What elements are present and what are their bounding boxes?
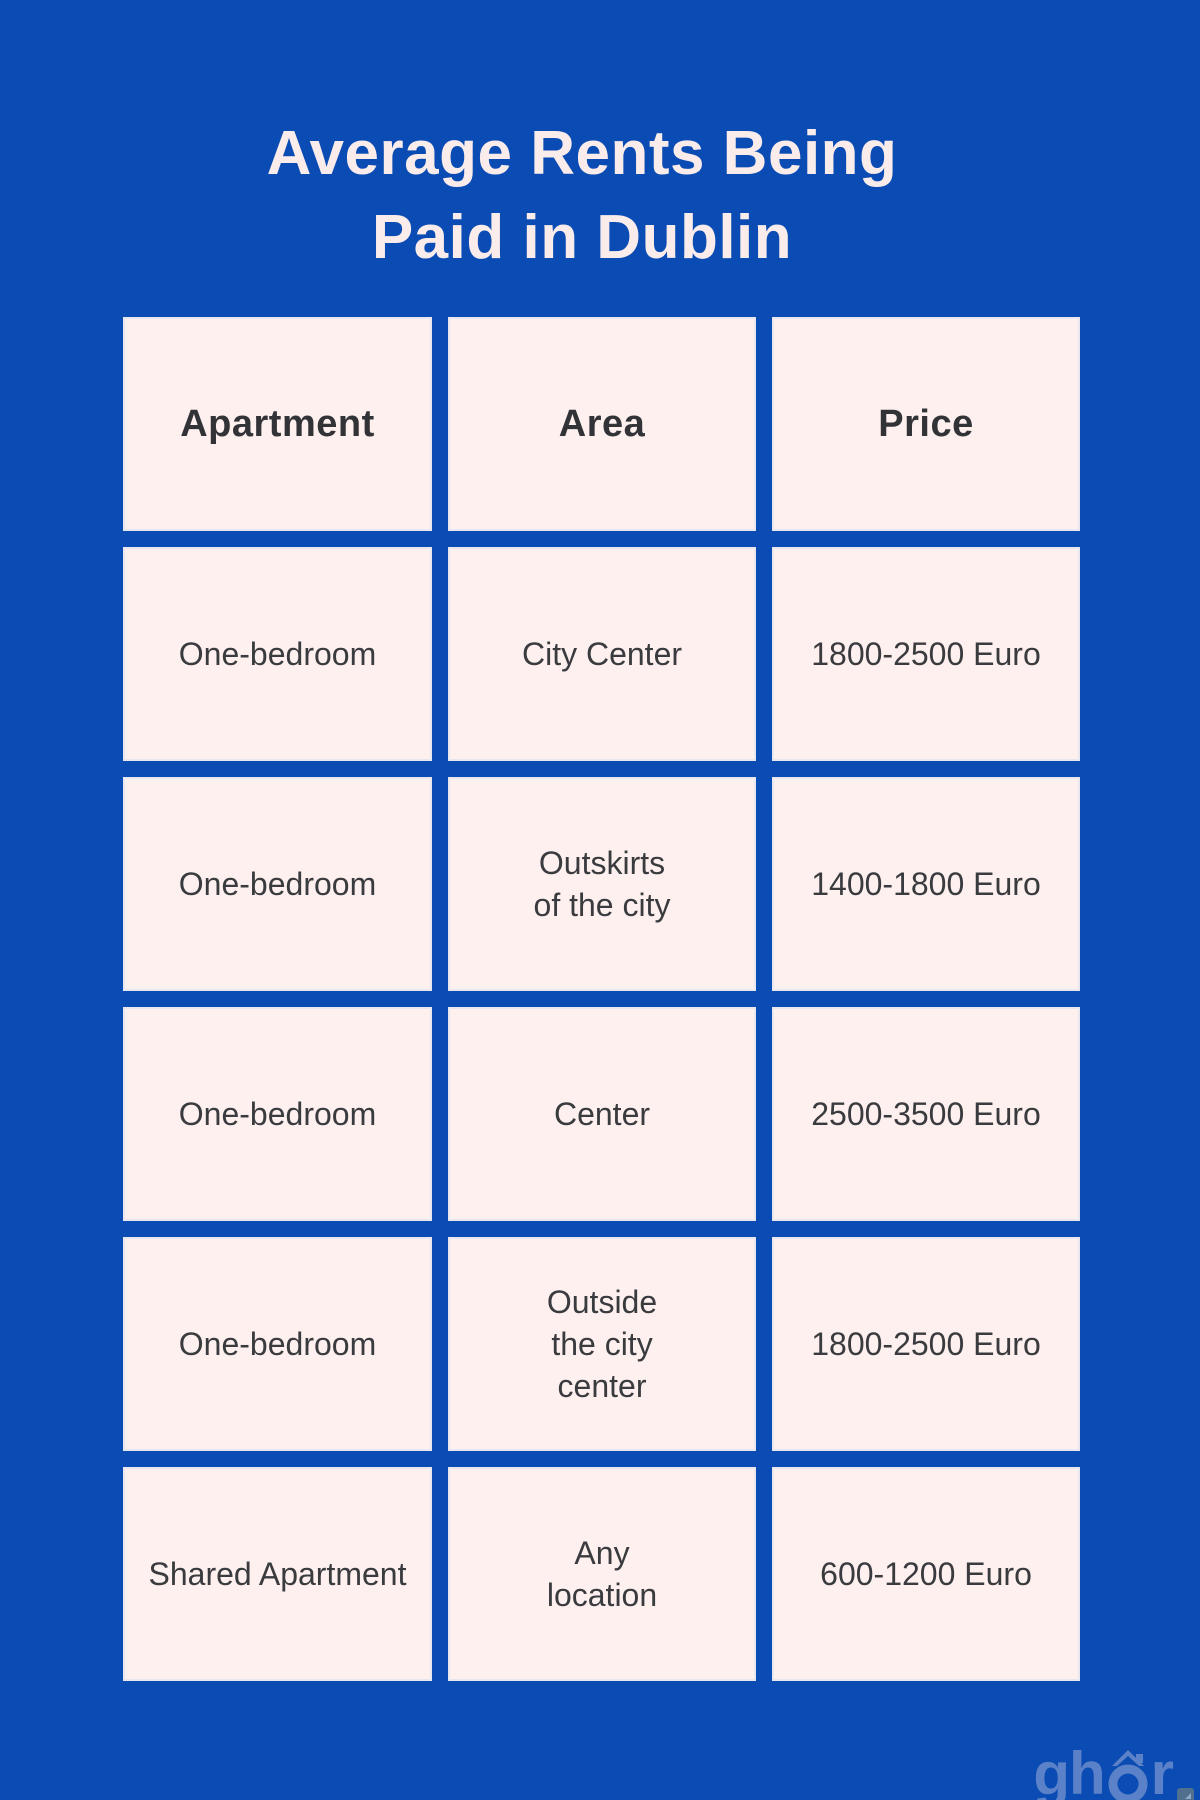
row5-apartment-cell: Shared Apartment <box>123 1467 432 1681</box>
row1-apartment-cell: One-bedroom <box>123 547 432 761</box>
header-cell-apartment: Apartment <box>123 317 432 531</box>
watermark-logo: gh r <box>1033 1744 1194 1800</box>
header-cell-price: Price <box>772 317 1080 531</box>
row1-area-cell: City Center <box>448 547 756 761</box>
logo-text-r: r <box>1151 1744 1173 1800</box>
row4-price-cell: 1800-2500 Euro <box>772 1237 1080 1451</box>
row2-price-cell: 1400-1800 Euro <box>772 777 1080 991</box>
row4-area-cell: Outside the city center <box>448 1237 756 1451</box>
row5-area-cell: Any location <box>448 1467 756 1681</box>
row5-price-cell: 600-1200 Euro <box>772 1467 1080 1681</box>
row3-area-cell: Center <box>448 1007 756 1221</box>
row4-apartment-cell: One-bedroom <box>123 1237 432 1451</box>
infographic-canvas: Average Rents Being Paid in Dublin Apart… <box>0 0 1200 1800</box>
row2-area-cell: Outskirts of the city <box>448 777 756 991</box>
page-title-line-2: Paid in Dublin <box>0 196 1164 280</box>
page-title: Average Rents Being Paid in Dublin <box>0 112 1164 280</box>
row3-apartment-cell: One-bedroom <box>123 1007 432 1221</box>
row1-price-cell: 1800-2500 Euro <box>772 547 1080 761</box>
row3-price-cell: 2500-3500 Euro <box>772 1007 1080 1221</box>
house-o-icon <box>1106 1748 1150 1800</box>
logo-text-gh: gh <box>1033 1744 1104 1800</box>
logo-dot-icon <box>1177 1788 1194 1800</box>
row2-apartment-cell: One-bedroom <box>123 777 432 991</box>
header-cell-area: Area <box>448 317 756 531</box>
page-title-line-1: Average Rents Being <box>0 112 1164 196</box>
rent-table: Apartment Area Price One-bedroom City Ce… <box>123 317 1080 1681</box>
